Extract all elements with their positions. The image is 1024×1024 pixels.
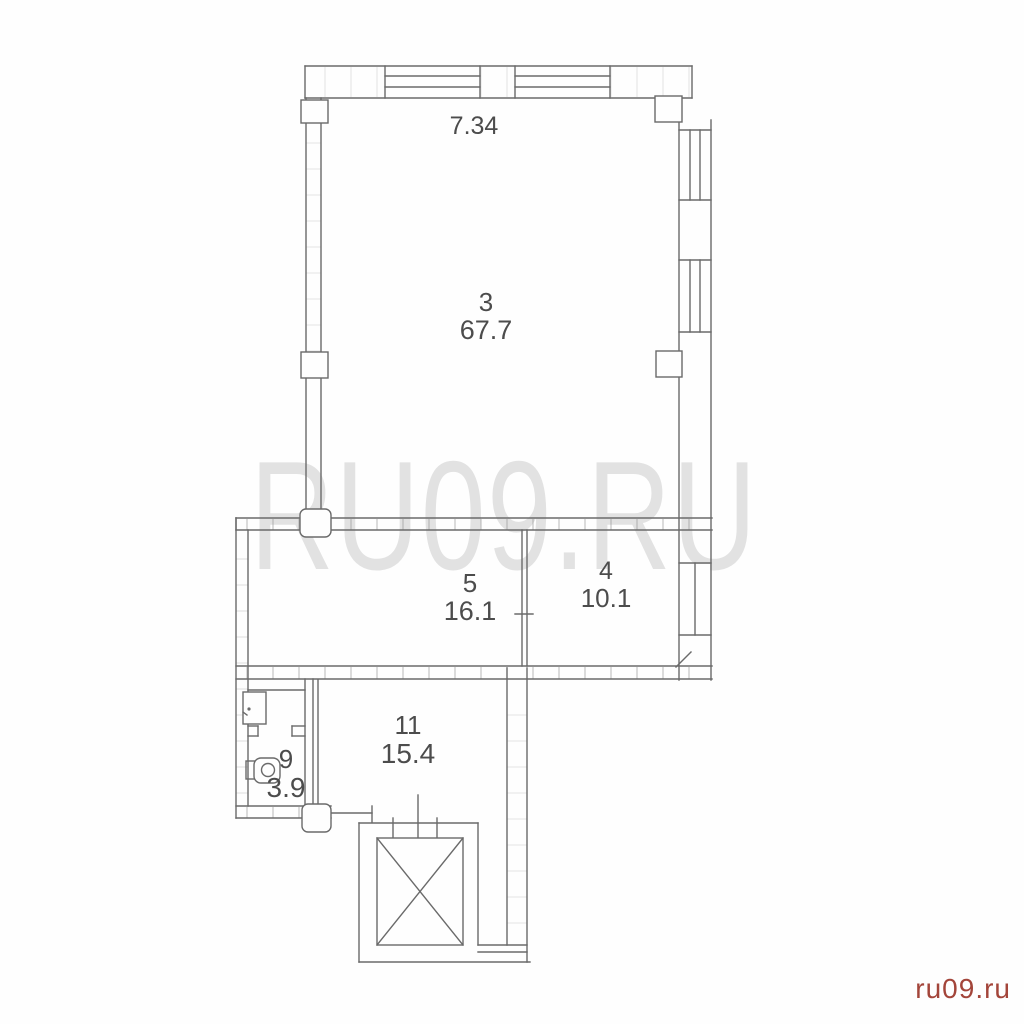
room4-door-swing	[676, 652, 691, 667]
room-9-number: 9	[267, 746, 306, 773]
room-3-number: 3	[460, 289, 513, 316]
sink-icon	[243, 692, 266, 724]
room-11-number: 11	[381, 712, 436, 739]
room-11-label: 11 15.4	[381, 712, 436, 770]
room-9-label: 9 3.9	[267, 746, 306, 804]
room3-top-wall	[305, 66, 692, 98]
right-window-1-icon	[679, 130, 711, 200]
room-11-area: 15.4	[381, 739, 436, 770]
top-window-right-icon	[515, 66, 610, 98]
dimension-label: 7.34	[450, 112, 499, 141]
mid-wall	[236, 509, 712, 537]
top-window-left-icon	[385, 66, 480, 98]
room-5-label: 5 16.1	[444, 570, 497, 627]
elevator-cross-icon	[377, 838, 463, 945]
room-3-label: 3 67.7	[460, 289, 513, 346]
room4-window-icon	[679, 563, 711, 635]
room-5-number: 5	[444, 570, 497, 597]
room5-room4-divider	[515, 530, 533, 666]
room-4-area: 10.1	[581, 584, 632, 613]
room-5-area: 16.1	[444, 597, 497, 627]
room-3-area: 67.7	[460, 316, 513, 346]
site-credit: ru09.ru	[915, 973, 1011, 1005]
room-9-area: 3.9	[267, 773, 306, 804]
floor-plan-drawing	[0, 0, 1024, 1024]
right-window-2-icon	[679, 260, 711, 332]
room-4-number: 4	[581, 558, 632, 584]
floor-plan-canvas: RU09.RU	[0, 0, 1024, 1024]
lower-mid-wall	[236, 652, 712, 679]
room-4-label: 4 10.1	[581, 558, 632, 613]
room3-left-wall	[301, 98, 328, 513]
